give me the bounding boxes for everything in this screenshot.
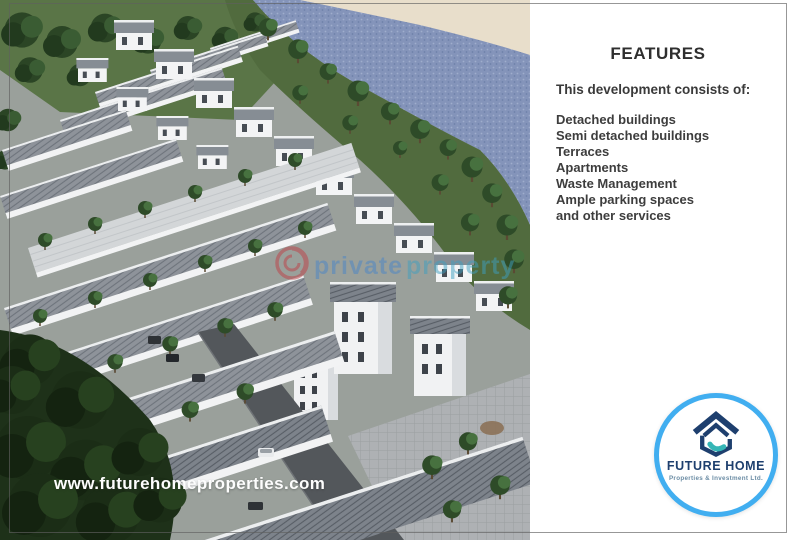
feature-item: Waste Management xyxy=(556,176,709,192)
feature-item: and other services xyxy=(556,208,709,224)
features-title: FEATURES xyxy=(530,44,786,64)
development-aerial-render: private property www.futurehomepropertie… xyxy=(0,0,530,540)
watermark-word1: private xyxy=(314,252,403,280)
website-link[interactable]: www.futurehomeproperties.com xyxy=(54,474,325,494)
feature-item: Apartments xyxy=(556,160,709,176)
feature-item: Semi detached buildings xyxy=(556,128,709,144)
features-intro: This development consists of: xyxy=(556,82,750,97)
feature-item: Ample parking spaces xyxy=(556,192,709,208)
feature-list: Detached buildings Semi detached buildin… xyxy=(556,112,709,224)
logo-house-icon xyxy=(690,408,742,458)
company-logo: FUTURE HOME Properties & Investment Ltd. xyxy=(654,393,778,517)
logo-subtitle: Properties & Investment Ltd. xyxy=(659,475,773,482)
logo-name: FUTURE HOME xyxy=(659,459,773,473)
aerial-render-illustration: private property xyxy=(0,0,530,540)
feature-item: Detached buildings xyxy=(556,112,709,128)
watermark-word2: property xyxy=(406,252,515,280)
flyer: private property www.futurehomepropertie… xyxy=(0,0,800,540)
feature-item: Terraces xyxy=(556,144,709,160)
